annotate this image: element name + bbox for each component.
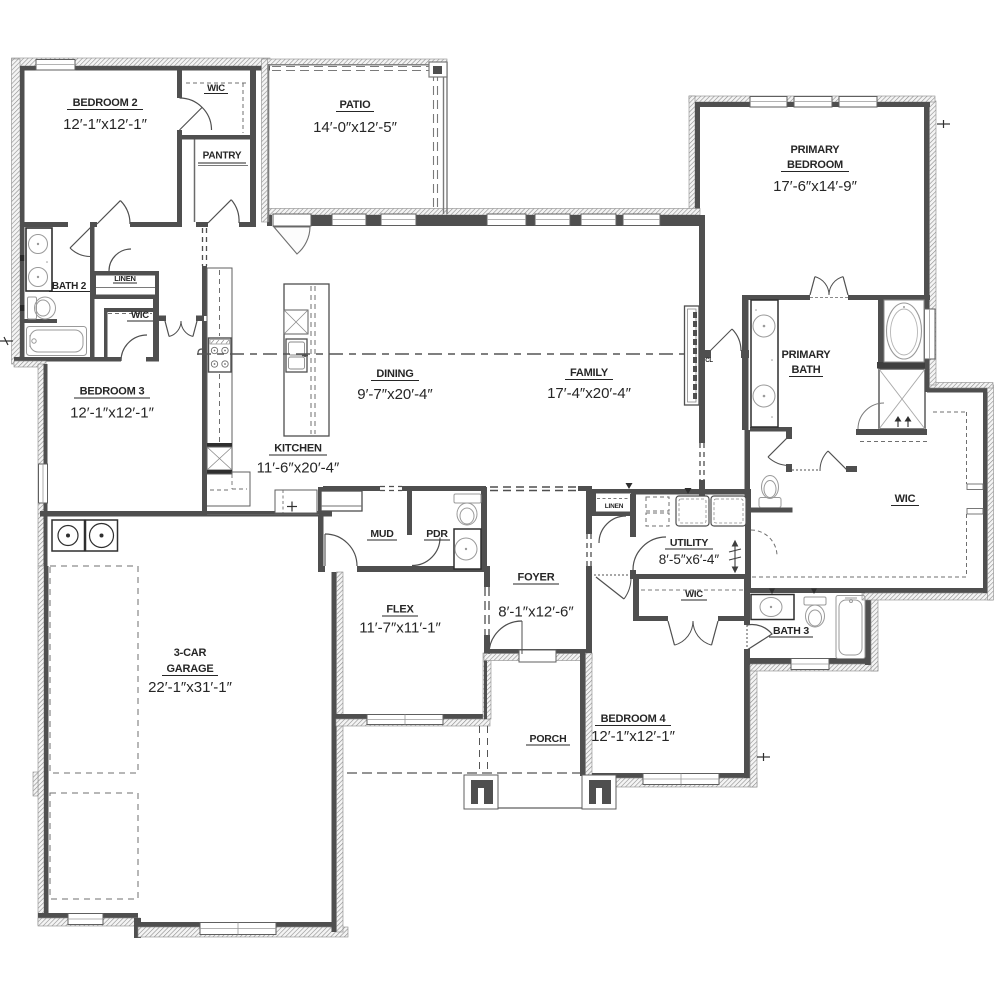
svg-text:WIC: WIC bbox=[131, 310, 149, 321]
svg-text:LINEN: LINEN bbox=[605, 503, 624, 510]
svg-text:3-CAR: 3-CAR bbox=[174, 647, 207, 659]
svg-text:BATH 3: BATH 3 bbox=[773, 625, 809, 637]
svg-text:9′-7″x20′-4″: 9′-7″x20′-4″ bbox=[357, 386, 433, 403]
svg-text:17′-6″x14′-9″: 17′-6″x14′-9″ bbox=[773, 178, 857, 195]
svg-text:12′-1″x12′-1″: 12′-1″x12′-1″ bbox=[63, 116, 147, 133]
svg-text:12′-1″x12′-1″: 12′-1″x12′-1″ bbox=[591, 728, 675, 745]
svg-text:BEDROOM 2: BEDROOM 2 bbox=[73, 97, 138, 109]
svg-text:CL: CL bbox=[705, 358, 713, 364]
svg-text:PDR: PDR bbox=[426, 528, 448, 540]
svg-text:12′-1″x12′-1″: 12′-1″x12′-1″ bbox=[70, 405, 154, 422]
svg-text:BEDROOM 4: BEDROOM 4 bbox=[601, 713, 667, 725]
svg-text:11′-7″x11′-1″: 11′-7″x11′-1″ bbox=[359, 620, 441, 637]
svg-text:PORCH: PORCH bbox=[530, 733, 567, 745]
svg-text:22′-1″x31′-1″: 22′-1″x31′-1″ bbox=[148, 679, 232, 696]
svg-text:FLEX: FLEX bbox=[386, 604, 414, 616]
svg-text:17′-4″x20′-4″: 17′-4″x20′-4″ bbox=[547, 385, 631, 402]
svg-text:8′-1″x12′-6″: 8′-1″x12′-6″ bbox=[498, 604, 574, 621]
svg-text:PATIO: PATIO bbox=[340, 99, 372, 111]
svg-text:WIC: WIC bbox=[685, 589, 703, 600]
svg-text:BATH: BATH bbox=[792, 364, 821, 376]
svg-text:PRIMARY: PRIMARY bbox=[782, 349, 832, 361]
svg-text:BEDROOM: BEDROOM bbox=[787, 159, 843, 171]
svg-text:GARAGE: GARAGE bbox=[166, 663, 213, 675]
svg-text:KITCHEN: KITCHEN bbox=[274, 443, 322, 455]
svg-text:PRIMARY: PRIMARY bbox=[791, 144, 841, 156]
svg-text:WIC: WIC bbox=[207, 83, 225, 94]
svg-text:8′-5″x6′-4″: 8′-5″x6′-4″ bbox=[659, 552, 720, 567]
svg-text:FOYER: FOYER bbox=[518, 572, 555, 584]
svg-text:11′-6″x20′-4″: 11′-6″x20′-4″ bbox=[257, 460, 340, 477]
svg-text:BEDROOM 3: BEDROOM 3 bbox=[80, 386, 145, 398]
svg-text:LINEN: LINEN bbox=[114, 274, 136, 283]
svg-text:FAMILY: FAMILY bbox=[570, 367, 609, 379]
svg-text:PANTRY: PANTRY bbox=[203, 151, 242, 162]
svg-text:MUD: MUD bbox=[370, 528, 394, 540]
svg-text:UTILITY: UTILITY bbox=[670, 537, 708, 549]
svg-text:WIC: WIC bbox=[895, 493, 916, 505]
svg-text:DINING: DINING bbox=[376, 368, 413, 380]
svg-text:BATH 2: BATH 2 bbox=[52, 281, 87, 292]
svg-text:14′-0″x12′-5″: 14′-0″x12′-5″ bbox=[313, 119, 397, 136]
